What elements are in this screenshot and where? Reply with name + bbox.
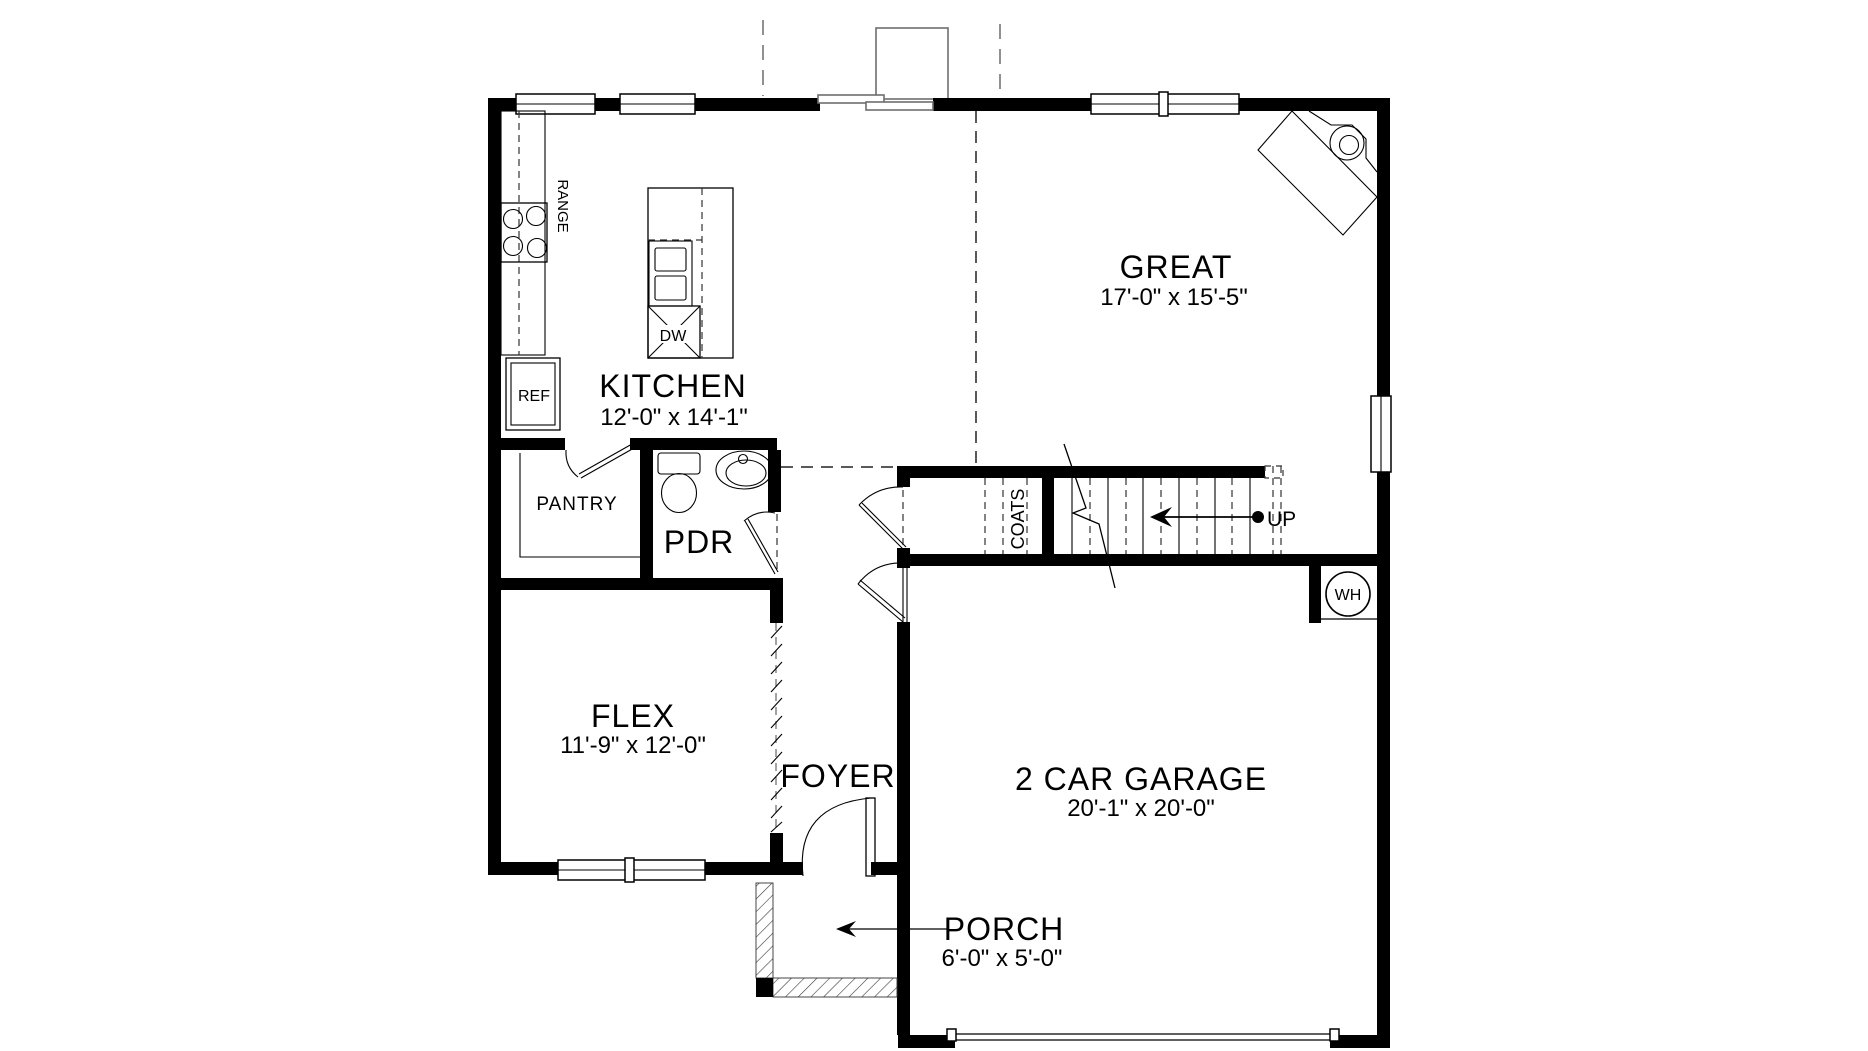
front-door	[802, 798, 875, 876]
powder-room-label: PDR	[664, 524, 735, 560]
exterior-walls	[488, 98, 1390, 1048]
garage-door-icon	[947, 1029, 1339, 1041]
floor-plan: RANGE REF DW	[0, 0, 1868, 1051]
range-icon	[501, 203, 547, 262]
kitchen-counter	[501, 111, 545, 355]
bathroom-sink-icon	[716, 451, 772, 489]
water-heater-label: WH	[1335, 587, 1362, 604]
up-arrow-icon	[1150, 507, 1264, 527]
great-room-label: GREAT	[1120, 249, 1233, 285]
window-flex	[558, 858, 705, 882]
great-room-dimensions: 17'-0" x 15'-5"	[1100, 284, 1248, 311]
garage-label: 2 CAR GARAGE	[1015, 761, 1267, 797]
powder-room-door	[744, 512, 778, 574]
cased-opening	[771, 623, 782, 833]
garage-entry-door	[858, 563, 907, 622]
fireplace-icon	[1258, 111, 1377, 235]
flex-room-label: FLEX	[591, 698, 675, 734]
garage-dimensions: 20'-1" x 20'-0"	[1067, 795, 1215, 822]
coat-closet-door	[859, 487, 906, 549]
kitchen-sink-icon	[649, 241, 692, 306]
exterior-stoop	[876, 28, 948, 99]
refrigerator-label: REF	[518, 388, 550, 405]
toilet-icon	[658, 453, 700, 513]
stairs-up-label: UP	[1267, 508, 1296, 531]
porch-structure	[756, 883, 897, 997]
flex-room-dimensions: 11'-9" x 12'-0"	[560, 732, 706, 759]
coat-closet-label: COATS	[1008, 489, 1028, 550]
window-great-double	[1091, 92, 1239, 116]
kitchen-label: KITCHEN	[599, 368, 746, 404]
stairs	[1064, 444, 1283, 588]
porch-leader-arrow	[836, 921, 947, 937]
range-label: RANGE	[554, 179, 571, 232]
dishwasher-label: DW	[660, 328, 688, 345]
foyer-label: FOYER	[780, 758, 895, 794]
window-great-side	[1371, 396, 1391, 472]
porch-label: PORCH	[944, 911, 1065, 947]
kitchen-island: DW	[648, 188, 733, 358]
pantry-door	[566, 444, 634, 478]
kitchen-dimensions: 12'-0" x 14'-1"	[600, 404, 748, 431]
floor-plan-drawing: RANGE REF DW	[0, 0, 1868, 1051]
porch-dimensions: 6'-0" x 5'-0"	[942, 945, 1063, 972]
pantry-label: PANTRY	[536, 494, 617, 515]
window-kitchen-right	[620, 94, 695, 114]
